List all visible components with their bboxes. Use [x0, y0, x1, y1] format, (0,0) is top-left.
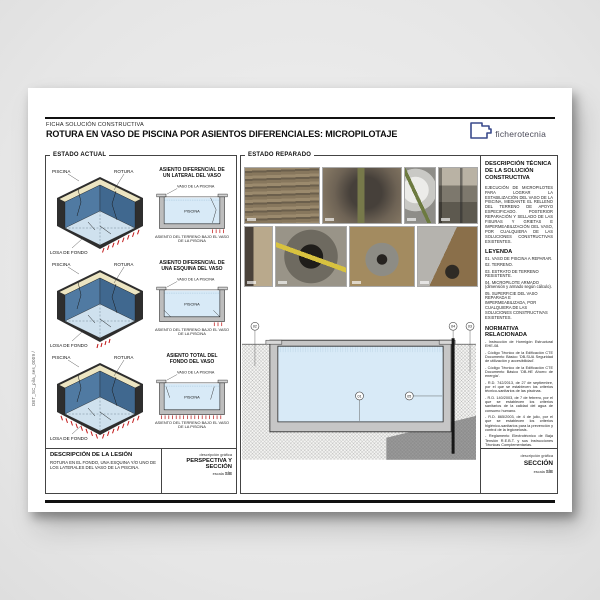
photo-large-pipe-section	[404, 167, 437, 224]
normativa-item: - Código Técnico de la Edificación CTE D…	[485, 351, 553, 364]
normativa-item: - Código Técnico de la Edificación CTE D…	[485, 366, 553, 379]
svg-text:PISCINA: PISCINA	[184, 208, 200, 213]
leyenda-heading: LEYENDA	[485, 249, 553, 255]
normativa-item: - Reglamento Electrotécnico de Baja Tens…	[485, 434, 553, 447]
sheet-title: ROTURA EN VASO DE PISCINA POR ASIENTOS D…	[46, 129, 397, 139]
photo-excavated-pile-head	[322, 167, 401, 224]
iso-pool-drawing: PISCINA ROTURA LOSA DE FONDO	[48, 164, 152, 256]
svg-text:PISCINA: PISCINA	[184, 394, 200, 399]
estado-reparado-panel: ESTADO REPARADO	[240, 155, 558, 494]
normativa-item: - Instrucción de Hormigón Estructural EH…	[485, 340, 553, 349]
section-sketch: VASO DE LA PISCINA PISCINA	[153, 182, 231, 234]
water-surface	[278, 346, 443, 352]
callout-05: 05	[407, 394, 411, 398]
photo-grid	[244, 167, 478, 289]
svg-text:VASO DE LA PISCINA: VASO DE LA PISCINA	[177, 277, 215, 281]
damage-row-fondo: PISCINA ROTURA LOSA DE FONDO ASIENTO TOT…	[48, 350, 232, 443]
callout-03: 03	[468, 325, 472, 329]
mini-section-column: ASIENTO TOTAL DEL FONDO DEL VASO VASO DE…	[152, 350, 232, 443]
legend-item: 03. ESTRATO DE TERRENO RESISTENTE.	[485, 270, 553, 280]
callout-04: 04	[451, 325, 455, 329]
label-rotura: ROTURA	[114, 262, 134, 267]
normativa-heading: NORMATIVA RELACIONADA	[485, 326, 553, 338]
technical-description-column: DESCRIPCIÓN TÉCNICA DE LA SOLUCIÓN CONST…	[480, 156, 556, 448]
pool-water	[278, 346, 443, 422]
label-piscina: PISCINA	[52, 169, 71, 174]
normativa-item: - R.D. 865/2003, de 4 de julio, por el q…	[485, 415, 553, 433]
mini-section-column: ASIENTO DIFERENCIAL DE UNA ESQUINA DEL V…	[152, 257, 232, 350]
svg-text:VASO DE LA PISCINA: VASO DE LA PISCINA	[177, 370, 215, 374]
estado-actual-panel: ESTADO ACTUAL PISCINA ROTURA	[45, 155, 237, 494]
mini-section-caption: ASIENTO DEL TERRENO BAJO EL VASO DE LA P…	[152, 235, 232, 244]
document-sheet: FICHA SOLUCIÓN CONSTRUCTIVA ROTURA EN VA…	[28, 88, 572, 512]
damage-row-esquina: PISCINA ROTURA LOSA DE FONDO ASIENTO DIF…	[48, 257, 232, 350]
mini-section-title: ASIENTO DIFERENCIAL DE UN LATERAL DEL VA…	[159, 168, 224, 180]
normativa-item: - R.D. 742/2013, de 27 de septiembre, po…	[485, 381, 553, 394]
callout-01: 01	[358, 394, 362, 398]
mini-section-title: ASIENTO DIFERENCIAL DE UNA ESQUINA DEL V…	[159, 261, 224, 273]
settlement-ticks	[161, 415, 220, 419]
photo-micropile-borehole	[349, 226, 415, 287]
lesion-footer: DESCRIPCIÓN DE LA LESIÓN ROTURA EN EL FO…	[46, 448, 236, 493]
photo-micropile-tubes-stack	[244, 167, 320, 224]
document-code: DET_SC_pila_ses_0009 /	[31, 316, 36, 406]
logo-text: ficherotecnia	[495, 129, 546, 139]
bottom-rule	[45, 500, 555, 503]
label-piscina: PISCINA	[52, 262, 71, 267]
settlement-ticks	[214, 322, 221, 326]
photo-borehole-with-measuring-tape	[275, 226, 347, 287]
legend-item: 05. SUPERFICIE DEL VASO REPARADA E IMPER…	[485, 292, 553, 321]
estado-actual-heading: ESTADO ACTUAL	[50, 152, 109, 158]
label-losa: LOSA DE FONDO	[50, 436, 88, 441]
photo-wall-repair-hole	[417, 226, 478, 287]
settlement-ticks	[212, 229, 223, 233]
section-sketch: VASO DE LA PISCINA PISCINA	[153, 368, 231, 420]
label-losa: LOSA DE FONDO	[50, 343, 88, 348]
svg-text:PISCINA: PISCINA	[184, 301, 200, 306]
graphic-footer-left: descripción gráfica PERSPECTIVA Y SECCIÓ…	[161, 449, 236, 493]
section-sketch: VASO DE LA PISCINA PISCINA	[153, 275, 231, 327]
graphic-footer-right: descripción gráfica SECCIÓN escala S/E	[480, 448, 557, 493]
photo-wall-pile-corner	[244, 226, 273, 287]
legend-item: 02. TERRENO.	[485, 263, 553, 268]
section-drawing: 02 04 03 01 05	[242, 314, 476, 460]
iso-pool-drawing: PISCINA ROTURA LOSA DE FONDO	[48, 350, 152, 442]
svg-text:VASO DE LA PISCINA: VASO DE LA PISCINA	[177, 184, 215, 188]
label-rotura: ROTURA	[114, 355, 134, 360]
legend-item: 04. MICROPILOTE ARMADO (dimensión y arma…	[485, 281, 553, 291]
iso-pool-drawing: PISCINA ROTURA LOSA DE FONDO	[48, 257, 152, 349]
mini-section-caption: ASIENTO DEL TERRENO BAJO EL VASO DE LA P…	[152, 328, 232, 337]
label-piscina: PISCINA	[52, 355, 71, 360]
micropile	[452, 338, 455, 454]
photo-drilling-equipment	[438, 167, 478, 224]
folder-icon	[468, 119, 494, 141]
mini-section-title: ASIENTO TOTAL DEL FONDO DEL VASO	[166, 354, 217, 366]
logo: ficherotecnia	[468, 119, 546, 141]
solution-body: EJECUCIÓN DE MICROPILOTES PARA LOGRAR LA…	[485, 185, 553, 245]
coping-left	[266, 340, 282, 344]
lesion-description: DESCRIPCIÓN DE LA LESIÓN ROTURA EN EL FO…	[46, 449, 161, 493]
mini-section-caption: ASIENTO DEL TERRENO BAJO EL VASO DE LA P…	[152, 421, 232, 430]
sheet-kicker: FICHA SOLUCIÓN CONSTRUCTIVA	[46, 122, 144, 128]
callout-02: 02	[253, 325, 257, 329]
estado-reparado-heading: ESTADO REPARADO	[245, 152, 314, 158]
solution-heading: DESCRIPCIÓN TÉCNICA DE LA SOLUCIÓN CONST…	[485, 161, 553, 182]
normativa-item: - R.D. 140/2003, de 7 de febrero, por el…	[485, 396, 553, 414]
label-losa: LOSA DE FONDO	[50, 250, 88, 255]
background: FICHA SOLUCIÓN CONSTRUCTIVA ROTURA EN VA…	[0, 0, 600, 600]
pool-section-svg: 02 04 03 01 05	[242, 314, 476, 460]
mini-section-column: ASIENTO DIFERENCIAL DE UN LATERAL DEL VA…	[152, 164, 232, 257]
damage-row-lateral: PISCINA ROTURA LOSA DE FONDO ASIENTO DIF…	[48, 164, 232, 257]
label-rotura: ROTURA	[114, 169, 134, 174]
